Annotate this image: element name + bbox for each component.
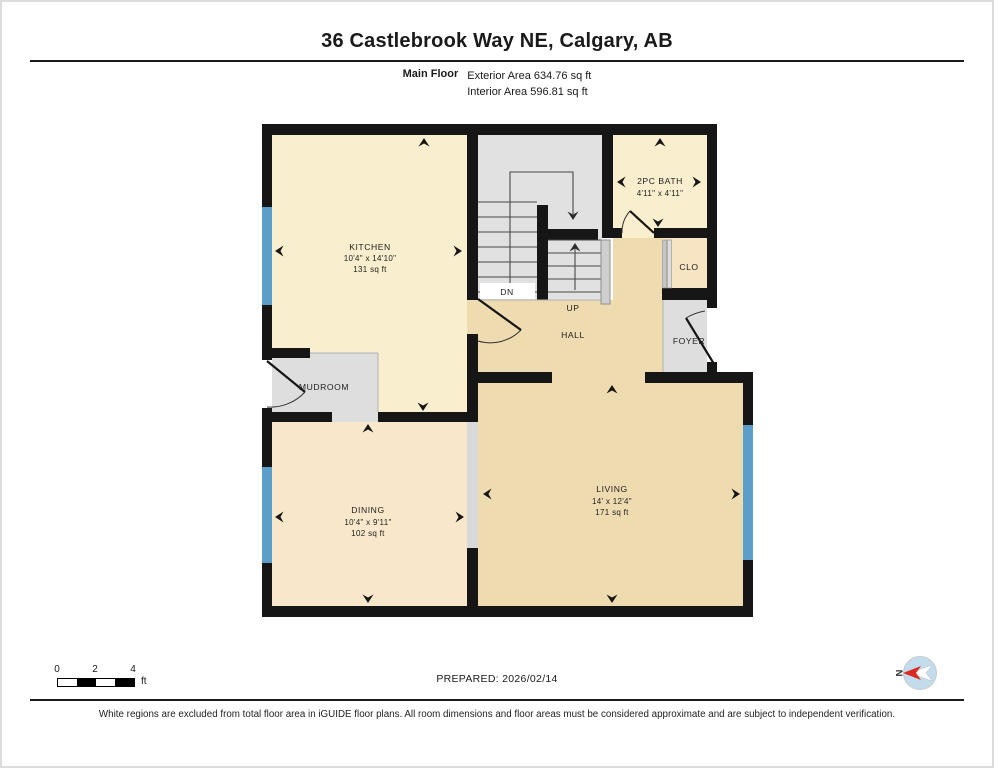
foyer-label: FOYER	[673, 336, 705, 346]
kitchen-dims: 10'4" x 14'10"	[344, 254, 397, 263]
kitchen-window	[262, 207, 272, 305]
bath-label: 2PC BATH	[637, 176, 683, 186]
closet-label: CLO	[679, 262, 698, 272]
stairs-up-label: UP	[566, 303, 579, 313]
kitchen-label: KITCHEN	[349, 242, 391, 252]
mudroom-dining-opening	[332, 412, 378, 422]
room-hall-upper	[613, 238, 662, 300]
floor-plan-svg: KITCHEN 10'4" x 14'10" 131 sq ft 2PC BAT…	[0, 0, 994, 768]
mudroom-door-opening	[262, 360, 272, 408]
floorplan-page: { "header": { "title": "36 Castlebrook W…	[0, 0, 994, 768]
stairs-dn-label: DN	[500, 287, 514, 297]
dining-label: DINING	[351, 505, 384, 515]
disclaimer-text: White regions are excluded from total fl…	[0, 709, 994, 720]
kitchen-area: 131 sq ft	[353, 265, 387, 274]
stair-railing	[601, 240, 610, 304]
room-living	[478, 383, 743, 606]
footer-divider	[30, 699, 964, 701]
living-dims: 14' x 12'4"	[592, 497, 632, 506]
hall-living-opening	[552, 372, 645, 383]
hall-label: HALL	[561, 330, 585, 340]
dining-dims: 10'4" x 9'11"	[344, 518, 391, 527]
bath-dims: 4'11" x 4'11"	[637, 189, 684, 198]
living-window	[743, 425, 753, 560]
mudroom-label: MUDROOM	[299, 382, 349, 392]
dining-window	[262, 467, 272, 563]
room-fills	[272, 135, 743, 606]
dining-area: 102 sq ft	[351, 529, 385, 538]
living-area: 171 sq ft	[595, 508, 629, 517]
prepared-date: PREPARED: 2026/02/14	[0, 673, 994, 685]
compass-north-label: N	[895, 669, 906, 676]
living-label: LIVING	[596, 484, 627, 494]
dn-door-opening	[467, 300, 478, 334]
dining-living-opening	[467, 422, 478, 548]
compass-icon: N	[876, 650, 946, 696]
